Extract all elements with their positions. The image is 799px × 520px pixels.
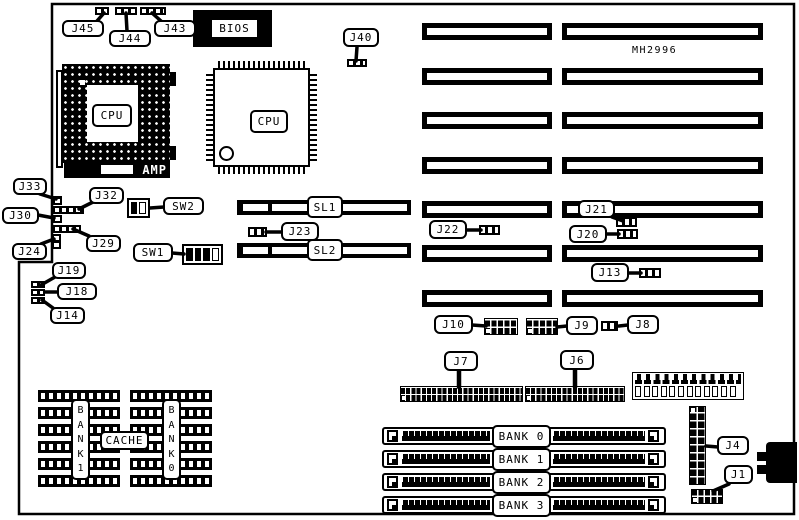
motherboard-diagram: BIOS CPU AMP CPU MH2996 SL1 — [0, 0, 799, 520]
callout-j29: J29 — [86, 235, 121, 252]
keyboard-connector-tab — [757, 465, 767, 474]
jumper-j22 — [479, 225, 500, 235]
callout-j13: J13 — [591, 263, 629, 282]
jumper-j40 — [347, 59, 367, 67]
isa-slot — [422, 201, 552, 218]
cpu-socket-tab-bottom — [170, 146, 176, 160]
bios-label: BIOS — [211, 19, 258, 38]
simm-latch — [648, 453, 659, 465]
cpu-qfp-leads-right — [310, 73, 317, 161]
simm-latch — [387, 453, 398, 465]
dip-switch-sw2 — [127, 198, 150, 218]
keyboard-din-connector — [766, 442, 797, 483]
simm-contact-bar — [402, 477, 490, 487]
isa-slot — [422, 68, 552, 85]
cpu-qfp-label: CPU — [250, 110, 288, 133]
simm-contact-bar — [553, 477, 645, 487]
amp-label: AMP — [142, 163, 167, 177]
cpu-qfp-leads-left — [206, 73, 213, 161]
cpu-qfp-leads-top — [218, 61, 306, 68]
cpu-pin1-marker — [80, 80, 85, 85]
isa-slot — [422, 245, 552, 262]
header-j6 — [525, 386, 625, 402]
header-j10 — [484, 318, 518, 335]
isa-slot — [422, 112, 552, 129]
simm-bank2-label: BANK 2 — [492, 471, 551, 494]
jumper-j29 — [53, 225, 81, 233]
jumper-j44 — [115, 7, 137, 15]
amp-bar-window — [101, 165, 133, 174]
simm-latch — [648, 476, 659, 488]
simm-contact-bar — [553, 431, 645, 441]
isa-slot — [422, 157, 552, 174]
isa-slot — [422, 23, 552, 40]
simm-latch — [648, 430, 659, 442]
keyboard-connector-tab — [757, 452, 767, 461]
jumper-j45 — [95, 7, 109, 15]
header-j1 — [691, 489, 723, 504]
sl1-label: SL1 — [307, 196, 343, 218]
power-bar — [635, 380, 741, 384]
power-connector — [632, 372, 744, 400]
bios-chip: BIOS — [193, 10, 272, 47]
power-sockets-row — [635, 386, 741, 397]
cpu-qfp-chip: CPU — [213, 68, 310, 167]
jumper-j18 — [31, 289, 45, 296]
jumper-j24 — [52, 234, 61, 249]
sl2-label: SL2 — [307, 239, 343, 261]
isa-slot — [562, 290, 763, 307]
callout-j14: J14 — [50, 307, 85, 324]
isa-slot — [562, 157, 763, 174]
jumper-j32 — [53, 206, 84, 214]
cpu-socket-tab-top — [170, 72, 176, 86]
callout-j19: J19 — [52, 262, 86, 279]
callout-j20: J20 — [569, 225, 607, 243]
cpu-qfp-leads-bottom — [218, 167, 306, 174]
qfp-pin1-circle — [219, 146, 234, 161]
jumper-j8 — [601, 321, 618, 331]
simm-contact-bar — [553, 500, 645, 510]
callout-j24: J24 — [12, 243, 47, 260]
isa-slot — [562, 245, 763, 262]
callout-j21: J21 — [578, 200, 615, 218]
jumper-j43 — [140, 7, 166, 15]
simm-latch — [648, 499, 659, 511]
callout-j32: J32 — [89, 187, 124, 204]
amp-socket-bar: AMP — [64, 163, 170, 178]
cache-bank0-label: B A N K 0 — [162, 399, 181, 480]
simm-latch — [387, 430, 398, 442]
jumper-j14 — [31, 297, 45, 304]
cache-label: CACHE — [100, 431, 149, 450]
callout-j22: J22 — [429, 220, 467, 239]
isa-slot — [562, 68, 763, 85]
callout-j4: J4 — [717, 436, 749, 455]
callout-j1: J1 — [724, 465, 753, 484]
model-number: MH2996 — [632, 45, 677, 56]
isa-slot — [562, 112, 763, 129]
callout-j8: J8 — [627, 315, 659, 334]
callout-j30: J30 — [2, 207, 39, 224]
simm-latch — [387, 499, 398, 511]
header-j7 — [400, 386, 523, 402]
callout-j45: J45 — [62, 20, 104, 37]
callout-j10: J10 — [434, 315, 473, 334]
callout-j7: J7 — [444, 351, 478, 371]
callout-j43: J43 — [154, 20, 196, 37]
jumper-j20 — [617, 229, 638, 239]
cache-bank1-label: B A N K 1 — [71, 399, 90, 480]
callout-j40: J40 — [343, 28, 379, 47]
callout-j33: J33 — [13, 178, 47, 195]
simm-latch — [387, 476, 398, 488]
jumper-j21 — [616, 217, 637, 227]
callout-j23: J23 — [281, 222, 319, 241]
callout-sw1: SW1 — [133, 243, 173, 262]
jumper-j13 — [639, 268, 661, 278]
cpu-pga-socket: CPU — [62, 64, 170, 163]
isa-slot — [422, 290, 552, 307]
isa-slot — [562, 23, 763, 40]
jumper-j30 — [53, 215, 62, 223]
simm-contact-bar — [402, 454, 490, 464]
header-j9 — [526, 318, 558, 335]
simm-bank0-label: BANK 0 — [492, 425, 551, 448]
callout-sw2: SW2 — [163, 197, 204, 215]
jumper-j23 — [248, 227, 267, 237]
callout-j9: J9 — [566, 316, 598, 335]
jumper-j33 — [53, 196, 62, 205]
simm-bank1-label: BANK 1 — [492, 448, 551, 471]
simm-contact-bar — [553, 454, 645, 464]
header-j4 — [689, 406, 706, 485]
simm-contact-bar — [402, 500, 490, 510]
callout-j6: J6 — [560, 350, 594, 370]
cpu-socket-label: CPU — [92, 104, 132, 127]
jumper-j19 — [31, 281, 45, 288]
simm-contact-bar — [402, 431, 490, 441]
callout-j18: J18 — [57, 283, 97, 300]
simm-bank3-label: BANK 3 — [492, 494, 551, 517]
callout-j44: J44 — [109, 30, 151, 47]
dip-switch-sw1 — [182, 244, 223, 265]
